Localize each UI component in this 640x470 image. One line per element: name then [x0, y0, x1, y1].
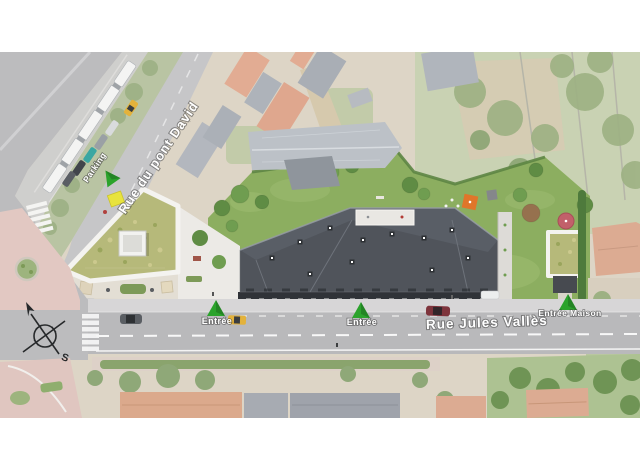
- entrance-label-left: Entrée: [202, 316, 232, 326]
- grey-parasol: [486, 189, 497, 200]
- round-planter: [16, 258, 38, 280]
- copper-tree: [522, 204, 540, 222]
- maison-porch: [553, 276, 577, 293]
- site-plan-canvas: S Rue du pont David Rue Jules Vallès Par…: [0, 0, 640, 470]
- street-hedge: [100, 360, 430, 369]
- neighbor-roof: [592, 222, 640, 276]
- neighbor-roof: [436, 396, 486, 418]
- plaza-tree: [212, 255, 226, 269]
- tall-hedge: [578, 190, 586, 302]
- entrance-label-maison: Entrée Maison: [538, 308, 601, 318]
- white-car: [481, 291, 499, 299]
- existing-building-wing: [284, 156, 340, 190]
- terrace-planter: [120, 284, 146, 294]
- grey-car: [120, 314, 142, 324]
- site-plan-rendering: S Rue du pont David Rue Jules Vallès Par…: [0, 0, 640, 470]
- rooftop-terrace: [356, 210, 414, 225]
- neighbor-roof: [244, 393, 288, 418]
- orange-parasol: [462, 194, 479, 211]
- red-car: [426, 306, 450, 317]
- beige-parasol: [161, 281, 173, 293]
- plaza-tree: [192, 230, 208, 246]
- entrance-label-center: Entrée: [347, 317, 377, 327]
